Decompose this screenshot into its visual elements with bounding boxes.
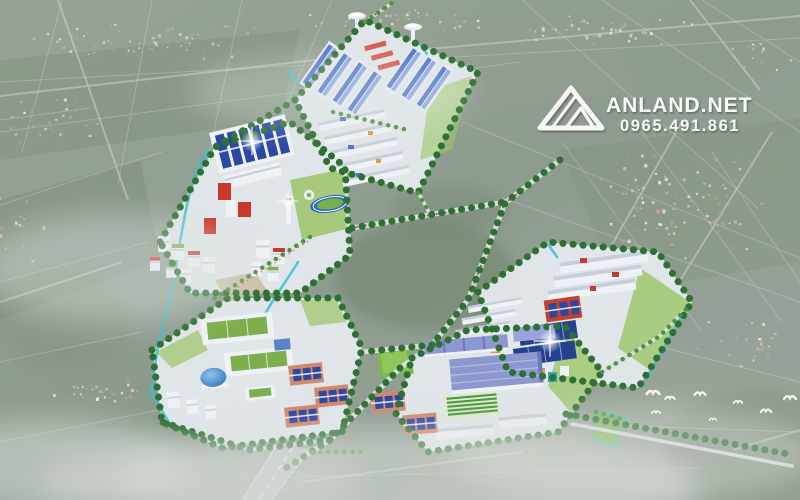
masterplan-rendering: ANLAND.NET 0965.491.861 bbox=[0, 0, 800, 500]
orange-solar-factory bbox=[284, 404, 320, 427]
orange-solar-factory bbox=[314, 384, 350, 407]
brand-name: ANLAND.NET bbox=[606, 94, 753, 117]
blue-annex bbox=[274, 338, 291, 351]
phone-number: 0965.491.861 bbox=[620, 117, 740, 135]
masterplan-screenshot: ANLAND.NET 0965.491.861 bbox=[0, 0, 800, 500]
roundabout bbox=[305, 191, 314, 200]
greenhouse-rows bbox=[444, 391, 500, 420]
orange-solar-factory bbox=[288, 362, 324, 385]
